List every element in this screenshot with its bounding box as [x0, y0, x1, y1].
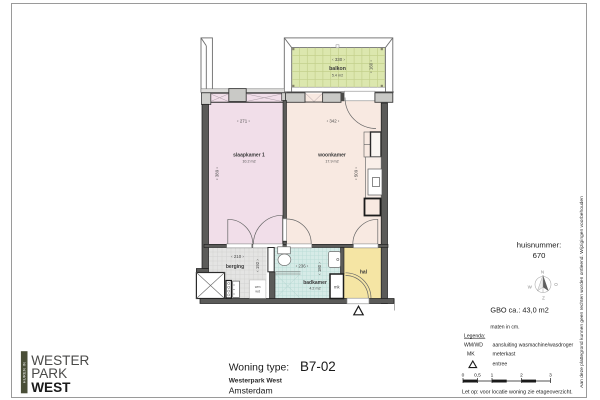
svg-text:17.9 m2: 17.9 m2	[325, 160, 338, 164]
svg-text:MK: MK	[467, 352, 475, 358]
svg-text:balkon: balkon	[329, 66, 346, 72]
svg-text:wd: wd	[255, 290, 260, 294]
svg-text:Aan deze plattegrond kunnen ge: Aan deze plattegrond kunnen geen rechten…	[579, 196, 585, 388]
svg-text:Amsterdam: Amsterdam	[229, 386, 273, 396]
svg-text:Z: Z	[542, 295, 545, 300]
svg-text:huisnummer:: huisnummer:	[517, 241, 561, 250]
svg-text:W: W	[528, 284, 533, 289]
svg-text:wm: wm	[255, 285, 261, 289]
svg-text:‹ 342 ›: ‹ 342 ›	[327, 119, 340, 124]
svg-text:5.4 m2: 5.4 m2	[332, 74, 343, 78]
svg-text:hal: hal	[360, 269, 368, 275]
svg-text:‹ 330 ›: ‹ 330 ›	[332, 57, 345, 62]
svg-text:‹ 271 ›: ‹ 271 ›	[237, 119, 250, 124]
svg-text:‹ 180 ›: ‹ 180 ›	[317, 262, 322, 275]
svg-text:meterkast: meterkast	[493, 352, 516, 358]
svg-text:entree: entree	[493, 362, 508, 368]
svg-text:‹ 509 ›: ‹ 509 ›	[354, 167, 359, 180]
svg-text:N: N	[541, 270, 544, 275]
svg-text:‹ 210 ›: ‹ 210 ›	[231, 254, 244, 259]
svg-text:berging: berging	[226, 264, 244, 270]
svg-text:woonkamer: woonkamer	[317, 153, 346, 159]
svg-text:4.2 m2: 4.2 m2	[309, 287, 320, 291]
svg-text:Let op: voor locatie woning: Let op: voor locatie woning zie etageove…	[462, 390, 573, 396]
svg-text:10.2 m2: 10.2 m2	[242, 160, 255, 164]
svg-text:0,5: 0,5	[474, 373, 481, 379]
svg-text:0: 0	[462, 373, 465, 379]
svg-text:1: 1	[491, 373, 494, 379]
svg-text:badkamer: badkamer	[303, 280, 327, 286]
svg-text:670: 670	[533, 251, 546, 260]
svg-text:GBO ca.: 43,0 m2: GBO ca.: 43,0 m2	[490, 306, 548, 315]
svg-text:WEST: WEST	[31, 380, 71, 395]
svg-text:Westerpark West: Westerpark West	[229, 378, 283, 385]
svg-text:B7-02: B7-02	[300, 359, 336, 374]
svg-text:O: O	[554, 282, 558, 287]
svg-text:2: 2	[520, 373, 523, 379]
svg-text:‹ 160 ›: ‹ 160 ›	[369, 60, 374, 73]
svg-text:Legenda:: Legenda:	[464, 334, 485, 340]
svg-text:‹ 236 ›: ‹ 236 ›	[296, 264, 309, 269]
svg-text:‹ 389 ›: ‹ 389 ›	[215, 167, 220, 180]
svg-text:‹ 192 ›: ‹ 192 ›	[255, 259, 260, 272]
svg-text:slaapkamer 1: slaapkamer 1	[233, 153, 265, 159]
svg-text:mk: mk	[334, 285, 340, 290]
svg-text:maten in cm.: maten in cm.	[490, 325, 519, 331]
svg-text:3: 3	[549, 373, 552, 379]
svg-text:HUREN IN: HUREN IN	[22, 362, 26, 384]
svg-text:WM/WD: WM/WD	[464, 343, 483, 349]
svg-text:aansluiting wasmachine/wasdrog: aansluiting wasmachine/wasdroger	[493, 343, 574, 349]
svg-text:Woning type:: Woning type:	[229, 362, 289, 373]
